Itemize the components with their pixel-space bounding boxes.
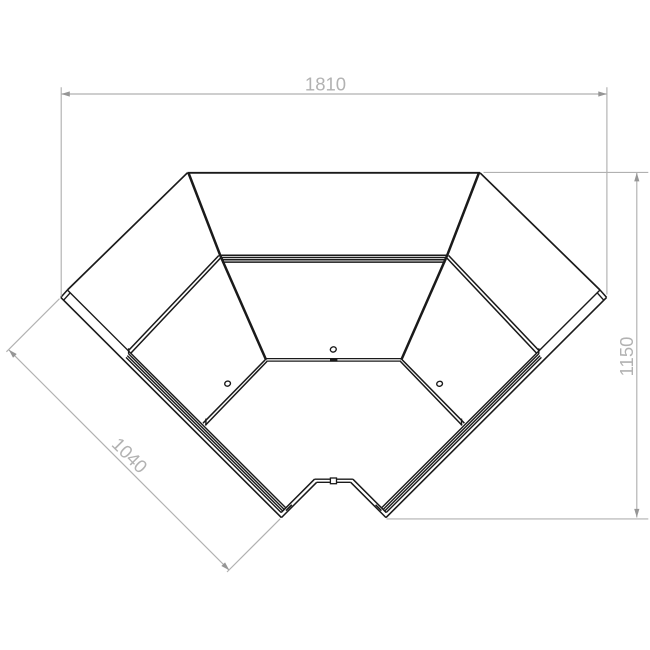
svg-text:1150: 1150 [616,337,637,377]
svg-text:1810: 1810 [305,73,346,94]
